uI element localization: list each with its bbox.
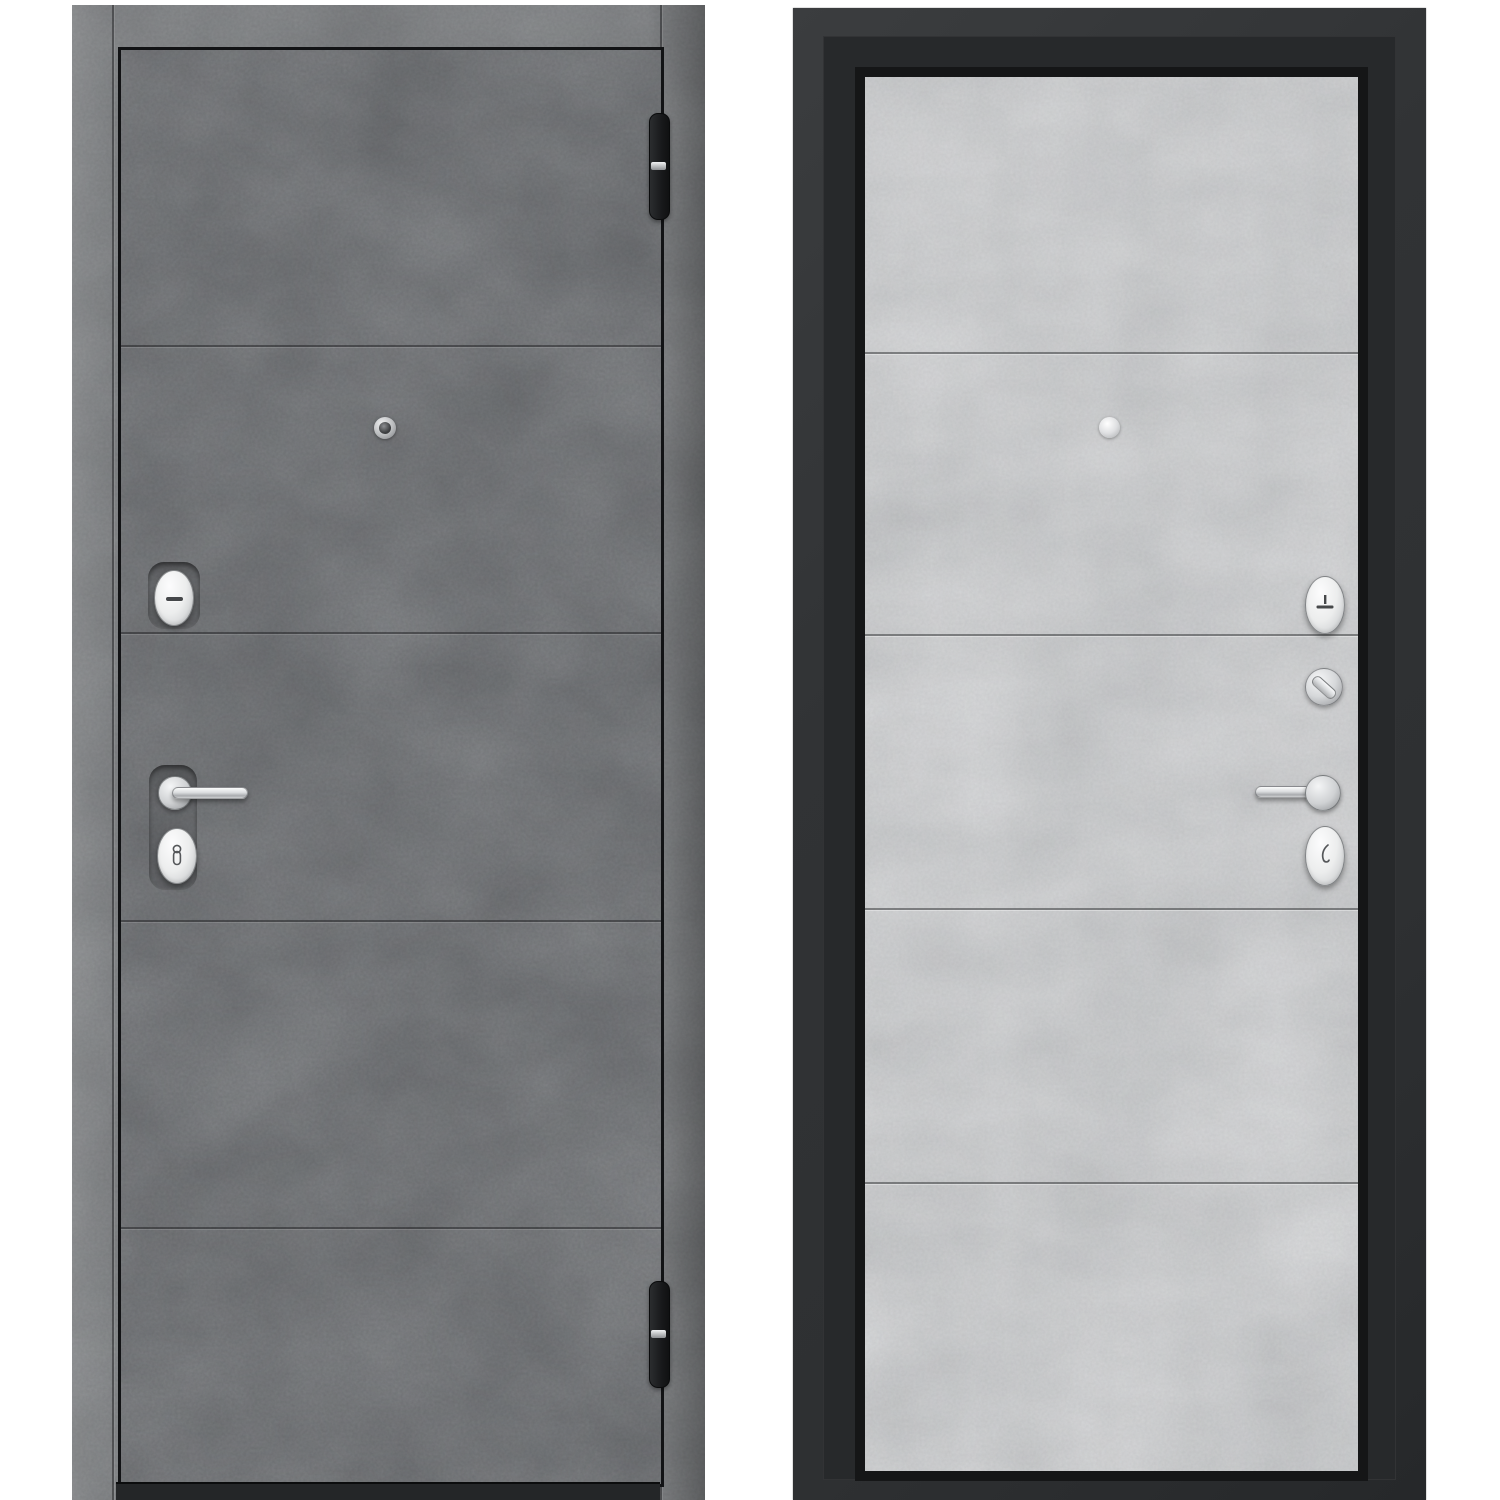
door-leaf (118, 47, 664, 1487)
interior-panel (865, 77, 1358, 1471)
door-interior-view (793, 8, 1426, 1500)
bottom-hinge-icon (649, 1281, 670, 1388)
upper-escutcheon (154, 570, 194, 626)
hinge-pin-band (651, 162, 666, 170)
panel-groove-1 (865, 352, 1358, 354)
product-photo-canvas (0, 0, 1500, 1500)
frame-seam-left (112, 5, 114, 1500)
thumb-slot-icon (166, 597, 183, 601)
keyhole-escutcheon (157, 828, 197, 884)
peephole-icon (374, 417, 396, 439)
panel-groove-3 (121, 920, 661, 922)
hinge-pin-band (651, 1330, 666, 1338)
night-latch-escutcheon (1305, 576, 1345, 634)
top-hinge-icon (649, 113, 670, 220)
thumbturn-knob (1305, 668, 1343, 706)
peephole-lens (379, 422, 391, 434)
concrete-texture-leaf (121, 50, 661, 1484)
panel-groove-1 (121, 345, 661, 347)
handle-rose (1305, 775, 1341, 811)
panel-groove-2 (121, 632, 661, 634)
thumbturn-lever-icon (1310, 674, 1338, 701)
door-exterior-view (72, 5, 705, 1500)
panel-groove-4 (865, 1182, 1358, 1184)
panel-groove-2 (865, 634, 1358, 636)
keyhole-icon (169, 842, 185, 870)
handle-lever (172, 787, 248, 799)
panel-groove-4 (121, 1227, 661, 1229)
night-latch-icon (1315, 594, 1335, 612)
door-threshold (116, 1482, 660, 1500)
concrete-texture-light (865, 77, 1358, 1471)
keyhole-escutcheon (1305, 826, 1345, 886)
peephole-icon (1099, 417, 1120, 438)
keyhole-icon (1317, 842, 1333, 870)
panel-groove-3 (865, 908, 1358, 910)
